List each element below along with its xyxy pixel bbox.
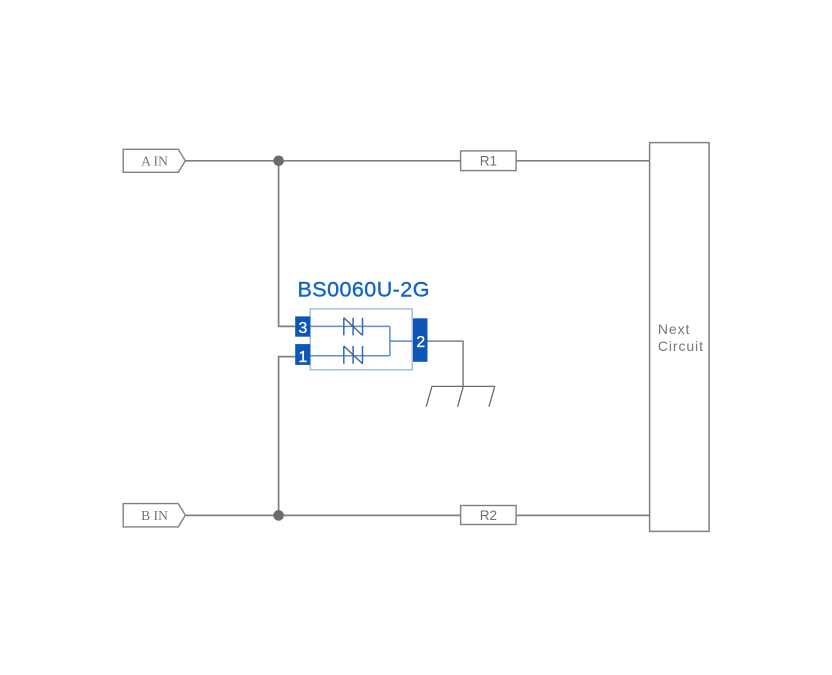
svg-text:BS0060U-2G: BS0060U-2G: [298, 278, 430, 302]
svg-text:2: 2: [416, 334, 425, 351]
svg-text:Circuit: Circuit: [658, 338, 704, 354]
svg-text:B IN: B IN: [141, 508, 168, 523]
svg-text:Next: Next: [658, 321, 690, 337]
svg-text:R2: R2: [480, 508, 497, 523]
svg-text:A IN: A IN: [141, 154, 168, 169]
svg-text:R1: R1: [480, 154, 497, 169]
svg-text:1: 1: [299, 349, 308, 366]
svg-text:3: 3: [299, 320, 308, 337]
